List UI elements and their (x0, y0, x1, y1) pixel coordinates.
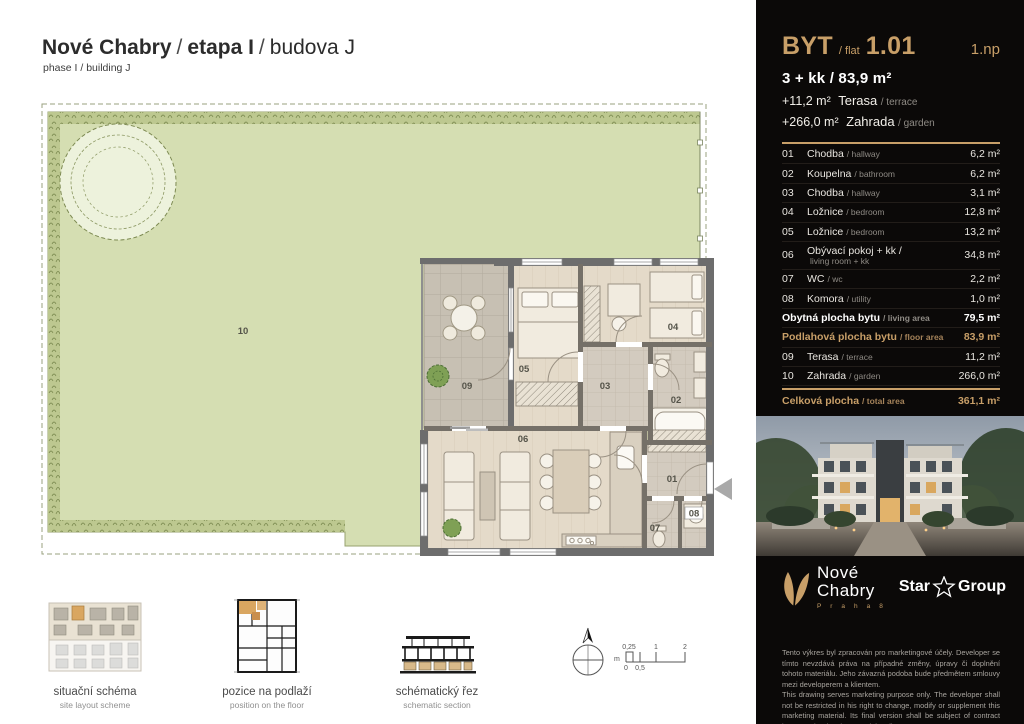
row-area: 34,8 m² (958, 249, 1000, 261)
row-num: 05 (782, 226, 807, 238)
room-label-bathroom-02: 02 (671, 395, 682, 406)
logo-line2: Chabry (817, 582, 886, 600)
row-name-en: / terrace (842, 352, 873, 362)
row-num: 06 (782, 249, 807, 261)
site-layout-scheme (48, 602, 142, 674)
table-row: 01 Chodba/ hallway 6,2 m² (782, 145, 1000, 164)
room-label-living-06: 06 (518, 434, 529, 445)
row-name-en: / hallway (847, 188, 880, 198)
legend-position: pozice na podlaží position on the floor (187, 686, 347, 710)
terrace-name-en: / terrace (881, 97, 918, 108)
nove-chabry-logo: Nové Chabry P r a h a 8 (780, 564, 886, 610)
table-row-living-area: Obytná plocha bytu/ living area 79,5 m² (782, 309, 1000, 328)
row-name: WC/ wc (807, 273, 964, 285)
table-row: 08 Komora/ utility 1,0 m² (782, 289, 1000, 308)
row-area: 79,5 m² (958, 312, 1000, 324)
table-row: 10 Zahrada/ garden 266,0 m² (782, 367, 1000, 386)
scale-tick: 2 (683, 644, 687, 651)
scale-tick: 1 (654, 644, 658, 651)
row-area: 83,9 m² (958, 331, 1000, 343)
row-name-en: / bedroom (846, 207, 884, 217)
table-row: 05 Ložnice/ bedroom 13,2 m² (782, 223, 1000, 242)
row-name-cs: Chodba (807, 148, 844, 160)
wardrobe (584, 286, 600, 342)
wardrobe (516, 382, 578, 406)
hedge-left (48, 124, 60, 532)
logo-line1: Nové (817, 564, 886, 582)
row-area: 13,2 m² (958, 226, 1000, 238)
legend-site-layout: situační schéma site layout scheme (15, 686, 175, 710)
coffee-table (480, 472, 495, 520)
row-area: 361,1 m² (952, 395, 1000, 407)
row-name-cs: Zahrada (807, 370, 846, 382)
row-name-cs: Celková plocha (782, 395, 859, 407)
flat-floor: 1.np (971, 41, 1000, 58)
row-name-cs: Obytná plocha bytu (782, 312, 880, 324)
row-num: 10 (782, 370, 807, 382)
room-label-bedroom-04: 04 (668, 322, 679, 333)
table-row: 09 Terasa/ terrace 11,2 m² (782, 348, 1000, 367)
disclaimer-cz: Tento výkres byl zpracován pro marketing… (782, 648, 1000, 690)
flat-garden-line: +266,0 m² Zahrada / garden (782, 114, 1000, 129)
position-on-floor (232, 596, 302, 678)
flat-label-en: / flat (839, 45, 860, 57)
row-area: 3,1 m² (964, 187, 1000, 199)
table-row: 07 WC/ wc 2,2 m² (782, 270, 1000, 289)
gold-divider (782, 142, 1000, 144)
legend-section-en: schematic section (357, 700, 517, 710)
row-area: 6,2 m² (964, 168, 1000, 180)
row-name: Celková plocha/ total area (782, 395, 952, 407)
disclaimer-en: This drawing serves marketing purpose on… (782, 690, 1000, 724)
row-name-en: / utility (847, 294, 871, 304)
row-num: 07 (782, 273, 807, 285)
row-name-en: / living area (883, 313, 930, 323)
nove-chabry-icon (780, 565, 810, 609)
row-area: 266,0 m² (953, 370, 1000, 382)
row-name: Obytná plocha bytu/ living area (782, 312, 958, 324)
row-area: 2,2 m² (964, 273, 1000, 285)
row-area: 11,2 m² (959, 351, 1000, 363)
row-name-cs: Komora (807, 293, 844, 305)
row-num: 09 (782, 351, 807, 363)
sink (694, 378, 706, 398)
row-name-en: / floor area (900, 332, 943, 342)
schematic-section (396, 634, 480, 676)
garden-name: Zahrada (846, 114, 894, 129)
hedge-top (48, 112, 700, 124)
table-row: 03 Chodba/ hallway 3,1 m² (782, 184, 1000, 203)
flat-info-panel: BYT / flat 1.01 1.np 3 + kk / 83,9 m² +1… (756, 0, 1024, 724)
row-name-cs: Chodba (807, 187, 844, 199)
room-label-hallway-03: 03 (600, 381, 611, 392)
terrace-name: Terasa (838, 93, 877, 108)
row-num: 08 (782, 293, 807, 305)
table-row: 02 Koupelna/ bathroom 6,2 m² (782, 164, 1000, 183)
sofa (500, 452, 530, 540)
row-name: Ložnice/ bedroom (807, 206, 958, 218)
row-name-cs: Koupelna (807, 168, 851, 180)
terrace-plant (427, 365, 449, 387)
row-name-en: / bathroom (854, 169, 895, 179)
legend-section-cs: schématický řez (357, 686, 517, 698)
star-group-word2: Group (958, 578, 1006, 596)
row-area: 12,8 m² (958, 206, 1000, 218)
room-label-bedroom-05: 05 (519, 364, 530, 375)
table-row: 06 Obývací pokoj + kk /living room + kk … (782, 242, 1000, 270)
terrace-area: +11,2 m² (782, 94, 831, 108)
table-row: 04 Ložnice/ bedroom 12,8 m² (782, 203, 1000, 222)
terrace-table (451, 305, 477, 331)
scale-tick: 0 (624, 665, 628, 672)
row-name-en: / bedroom (846, 227, 884, 237)
flat-number: 1.01 (866, 32, 916, 61)
row-name-cs: Podlahová plocha bytu (782, 331, 897, 343)
row-name: Komora/ utility (807, 293, 964, 305)
row-num: 03 (782, 187, 807, 199)
row-name: Zahrada/ garden (807, 370, 953, 382)
table-row-floor-area: Podlahová plocha bytu/ floor area 83,9 m… (782, 328, 1000, 347)
legend-position-en: position on the floor (187, 700, 347, 710)
row-name-en: / wc (828, 274, 843, 284)
star-group-logo: Star Group (899, 576, 1006, 598)
flat-header: BYT / flat 1.01 1.np (782, 32, 1000, 61)
flat-disposition: 3 + kk / 83,9 m² (782, 70, 1000, 87)
north-compass (566, 626, 610, 678)
star-group-word1: Star (899, 578, 930, 596)
row-name-en: / garden (849, 371, 880, 381)
room-table: 01 Chodba/ hallway 6,2 m² 02 Koupelna/ b… (782, 145, 1000, 411)
row-num: 02 (782, 168, 807, 180)
dining-set (540, 450, 601, 513)
row-name: Podlahová plocha bytu/ floor area (782, 331, 958, 343)
entrance-arrow (714, 478, 732, 500)
room-label-hallway-01: 01 (667, 474, 678, 485)
tree (60, 124, 176, 240)
row-name-en: living room + kk (810, 257, 958, 267)
disclaimer: Tento výkres byl zpracován pro marketing… (782, 648, 1000, 724)
room-label-garden: 10 (238, 326, 249, 337)
logo-praha8: P r a h a 8 (817, 603, 886, 610)
building-photo (756, 416, 1024, 556)
bed-single (650, 272, 704, 302)
sink (694, 352, 706, 372)
hedge-bottom (60, 520, 345, 532)
row-area: 1,0 m² (964, 293, 1000, 305)
row-name-en: / hallway (847, 149, 880, 159)
row-name-cs: Obývací pokoj + kk / (807, 245, 958, 257)
row-name: Obývací pokoj + kk /living room + kk (807, 245, 958, 267)
row-num: 01 (782, 148, 807, 160)
scale-bar: m 0,25 1 2 0 0,5 (612, 640, 696, 672)
flat-label: BYT (782, 32, 833, 61)
flat-terrace-line: +11,2 m² Terasa / terrace (782, 93, 1000, 108)
row-name: Chodba/ hallway (807, 187, 964, 199)
room-label-wc-07: 07 (650, 523, 661, 534)
table-row-total: Celková plocha/ total area 361,1 m² (782, 388, 1000, 411)
scale-tick: 0,25 (622, 644, 636, 651)
row-name-en: / total area (862, 396, 905, 406)
logo-row: Nové Chabry P r a h a 8 Star Group (756, 564, 1024, 610)
scale-tick: 0,5 (635, 665, 645, 672)
row-name-cs: Ložnice (807, 226, 843, 238)
row-num: 04 (782, 206, 807, 218)
legend-site-layout-en: site layout scheme (15, 700, 175, 710)
row-name: Chodba/ hallway (807, 148, 964, 160)
garden-area: +266,0 m² (782, 115, 839, 129)
legend-site-layout-cs: situační schéma (15, 686, 175, 698)
scale-unit: m (614, 656, 620, 663)
row-name: Terasa/ terrace (807, 351, 959, 363)
plant (443, 519, 461, 537)
room-label-terrace: 09 (462, 381, 473, 392)
legend-section: schématický řez schematic section (357, 686, 517, 710)
highlighted-building-j (72, 606, 84, 620)
garden-name-en: / garden (898, 118, 935, 129)
legend-position-cs: pozice na podlaží (187, 686, 347, 698)
room-label-utility-08: 08 (689, 509, 700, 520)
row-area: 6,2 m² (964, 148, 1000, 160)
row-name-cs: Ložnice (807, 206, 843, 218)
row-name-cs: Terasa (807, 351, 839, 363)
star-icon (932, 576, 956, 598)
row-name-cs: WC (807, 273, 825, 285)
brochure-page: Nové Chabry/etapa I/budova J phase I / b… (0, 0, 1024, 724)
row-name: Koupelna/ bathroom (807, 168, 964, 180)
terrace (424, 264, 512, 428)
bed-double (518, 288, 580, 358)
row-name: Ložnice/ bedroom (807, 226, 958, 238)
